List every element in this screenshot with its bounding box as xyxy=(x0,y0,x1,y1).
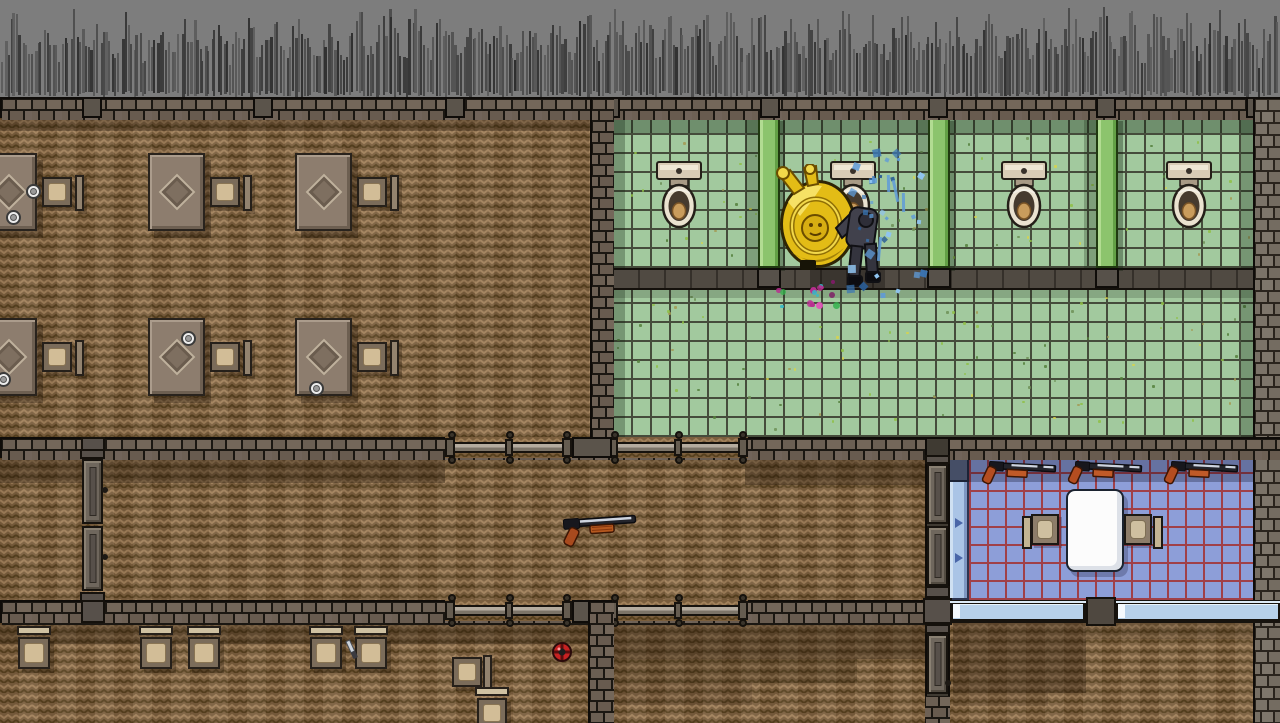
gore-splatter-dot xyxy=(833,302,840,309)
tile-speck xyxy=(748,396,751,399)
grass-blade xyxy=(1000,58,1003,97)
grass-blade xyxy=(583,24,586,92)
tile-speck xyxy=(965,244,968,247)
grass-blade xyxy=(370,46,372,97)
tile-speck xyxy=(952,311,955,314)
grass-blade xyxy=(1134,25,1136,94)
grass-blade xyxy=(253,27,255,92)
grass-blade xyxy=(1125,41,1127,95)
grass-blade xyxy=(537,50,539,95)
gore-splatter-dot xyxy=(831,280,835,284)
railing-knob xyxy=(563,594,571,602)
grass-blade xyxy=(79,42,81,94)
railing-knob xyxy=(563,431,571,439)
grass-blade xyxy=(144,61,146,94)
door-groove xyxy=(89,467,96,516)
grass-blade xyxy=(420,26,422,95)
grass-blade xyxy=(1095,32,1097,94)
grass-blade xyxy=(1200,54,1202,95)
door-hinge xyxy=(102,554,108,560)
tile-speck xyxy=(903,187,905,190)
grass-blade xyxy=(918,42,920,92)
grass-blade xyxy=(753,45,755,92)
grass-blade xyxy=(1137,51,1139,94)
grass-blade xyxy=(883,44,885,95)
stool-back xyxy=(17,626,51,635)
tile-speck xyxy=(1230,197,1232,200)
water-splash-particle xyxy=(862,195,866,199)
grass-blade xyxy=(652,29,654,95)
railing-knob xyxy=(506,619,514,627)
window-glass xyxy=(953,604,1083,619)
door-cap xyxy=(925,455,950,464)
grass-blade xyxy=(596,40,598,92)
grass-blade xyxy=(351,33,353,92)
office-chair-back xyxy=(390,175,399,211)
grass-blade xyxy=(1238,23,1240,91)
tile-speck xyxy=(1105,297,1108,299)
wall-shotgun[interactable] xyxy=(981,458,1059,492)
grass-blade xyxy=(73,9,75,93)
grass-blade xyxy=(478,32,480,95)
grass-blade xyxy=(439,19,441,96)
office-chair-seat xyxy=(42,177,72,207)
grass-blade xyxy=(1204,38,1206,94)
grass-blade xyxy=(1056,54,1059,92)
chair-cushion xyxy=(363,348,381,366)
grass-blade xyxy=(876,44,878,93)
grass-blade xyxy=(849,34,851,96)
plate-detail xyxy=(0,376,7,383)
grass-blade xyxy=(1183,41,1185,93)
grass-blade xyxy=(760,17,762,94)
grass-blade xyxy=(399,56,401,95)
railing-knob xyxy=(675,431,683,439)
grass-blade xyxy=(31,54,33,94)
grass-blade xyxy=(256,57,258,93)
grass-blade xyxy=(1219,10,1221,93)
grass-blade xyxy=(720,41,722,94)
tile-speck xyxy=(1191,329,1193,331)
tile-speck xyxy=(819,326,822,328)
stall-divider-wall xyxy=(1096,118,1118,268)
stool-cushion xyxy=(361,643,381,663)
tile-speck xyxy=(894,418,897,421)
tile-speck xyxy=(1087,337,1089,340)
tile-speck xyxy=(933,396,936,398)
grass-blade xyxy=(1012,37,1014,93)
stool-seat xyxy=(18,637,50,669)
tile-speck xyxy=(774,428,777,431)
office-bathroom-wall-surface xyxy=(590,97,612,458)
tile-speck xyxy=(1080,302,1083,305)
grass-blade xyxy=(423,45,425,96)
grass-blade xyxy=(135,35,138,95)
grass-blade xyxy=(966,53,968,97)
gore-splatter-dot xyxy=(780,289,786,295)
stool-seat xyxy=(188,637,220,669)
door-panel[interactable] xyxy=(927,526,948,586)
grass-blade xyxy=(432,37,434,94)
tile-speck xyxy=(766,378,769,380)
grass-blade xyxy=(730,13,732,97)
red-mine[interactable] xyxy=(551,641,573,663)
office-chair-back xyxy=(243,175,252,211)
railing-knob xyxy=(448,619,456,627)
tile-speck xyxy=(1017,236,1020,238)
grass-blade xyxy=(243,39,245,93)
tile-speck xyxy=(714,230,717,232)
grass-blade xyxy=(556,35,558,95)
grass-blade xyxy=(394,28,396,96)
grass-blade xyxy=(819,48,821,94)
grass-blade xyxy=(324,47,327,95)
grass-blade xyxy=(184,19,186,93)
desk-plate xyxy=(181,331,196,346)
door-cap xyxy=(80,592,105,602)
grass-blade xyxy=(474,38,476,94)
grass-blade xyxy=(481,29,483,93)
tile-speck xyxy=(1091,184,1094,186)
stool-seat xyxy=(140,637,172,669)
tile-speck xyxy=(836,336,839,339)
door-arrow-icon xyxy=(955,553,963,563)
chair-cushion xyxy=(48,183,66,201)
white-table xyxy=(1066,489,1124,572)
grass-blade xyxy=(451,32,454,92)
grass-blade xyxy=(469,28,472,97)
grass-blade xyxy=(726,12,728,96)
railing-post xyxy=(674,439,682,456)
grass-blade xyxy=(125,12,127,92)
grass-blade xyxy=(724,36,726,96)
railing-knob xyxy=(563,456,571,464)
stall-divider-base xyxy=(927,268,951,288)
tile-speck xyxy=(968,143,970,146)
tile-speck xyxy=(1150,145,1153,147)
stool-back xyxy=(309,626,343,635)
grass-blade xyxy=(1177,28,1179,93)
grass-blade xyxy=(331,37,333,93)
tile-speck xyxy=(996,244,998,246)
grass-blade xyxy=(1269,34,1271,95)
tile-speck xyxy=(722,189,724,191)
grass-blade xyxy=(631,47,633,96)
game-viewport xyxy=(0,0,1280,723)
toilet[interactable] xyxy=(1166,161,1212,231)
office-chair-back xyxy=(390,340,399,376)
door-groove xyxy=(934,472,941,516)
grass-blade xyxy=(1276,22,1278,92)
tile-speck xyxy=(1132,364,1135,366)
grass-blade xyxy=(55,45,57,92)
grass-blade xyxy=(117,53,119,92)
grass-blade xyxy=(292,26,294,91)
grass-blade xyxy=(1213,30,1216,94)
grass-blade xyxy=(1038,29,1040,96)
grass-blade xyxy=(913,48,915,93)
grass-blade xyxy=(958,37,960,93)
top-wall-surface xyxy=(0,97,1280,118)
door-panel[interactable] xyxy=(82,459,103,524)
knife[interactable] xyxy=(344,639,360,661)
wall-shotgun[interactable] xyxy=(1067,458,1145,492)
grass-blade xyxy=(1029,59,1031,93)
grass-blade xyxy=(356,21,358,91)
grass-blade xyxy=(114,58,116,97)
railing-post xyxy=(674,602,682,619)
grass-blade xyxy=(489,44,491,92)
grass-blade xyxy=(1198,61,1200,96)
grass-blade xyxy=(309,47,311,94)
tile-speck xyxy=(1163,175,1165,178)
chair-cushion xyxy=(216,348,234,366)
armchair-seat xyxy=(1124,514,1152,545)
grass-blade xyxy=(673,45,675,96)
toilet[interactable] xyxy=(656,161,702,231)
grass-blade xyxy=(627,51,630,95)
office-chair-seat xyxy=(210,177,240,207)
grass-blade xyxy=(945,43,947,92)
grass-blade xyxy=(687,46,689,93)
grass-blade xyxy=(579,21,581,96)
water-splash-particle xyxy=(863,210,869,216)
stall-divider-wall xyxy=(928,118,950,268)
grass-blade xyxy=(340,55,342,94)
grass-blade xyxy=(511,58,513,96)
grass-blade xyxy=(544,55,546,91)
bottom-divider-wall-surface xyxy=(588,600,612,723)
tile-speck xyxy=(869,141,872,143)
tile-speck xyxy=(617,347,619,349)
grass-blade xyxy=(526,46,528,94)
grass-blade xyxy=(130,44,132,93)
grass-blade xyxy=(1099,17,1102,96)
office-chair-seat xyxy=(357,342,387,372)
bathroom-floor-tiles xyxy=(612,290,1253,437)
door-panel[interactable] xyxy=(82,526,103,591)
office-desk xyxy=(148,318,205,396)
tile-speck xyxy=(1026,357,1029,359)
tile-speck xyxy=(869,393,871,396)
grass-blade xyxy=(1087,56,1089,91)
railing-knob xyxy=(739,594,747,602)
grass-blade xyxy=(1,62,3,93)
grass-blade xyxy=(655,58,657,97)
railing-knob xyxy=(739,431,747,439)
grass-blade xyxy=(62,44,64,95)
tile-speck xyxy=(713,416,716,419)
railing-post xyxy=(505,602,513,619)
grass-blade xyxy=(496,38,498,93)
grass-blade xyxy=(1032,55,1034,95)
grass-blade xyxy=(758,18,760,95)
grass-blade xyxy=(670,16,672,94)
chair-cushion xyxy=(363,183,381,201)
grass-blade xyxy=(856,53,858,96)
tile-speck xyxy=(755,155,757,157)
tile-speck xyxy=(971,394,973,397)
grass-blade xyxy=(1045,31,1047,91)
tile-speck xyxy=(737,383,739,386)
grass-blade xyxy=(148,40,150,91)
grass-blade xyxy=(385,36,388,92)
grass-blade xyxy=(93,40,95,96)
grass-blade xyxy=(235,32,237,97)
railing-knob xyxy=(675,619,683,627)
stool-cushion xyxy=(24,643,44,663)
wall-junction-block xyxy=(923,598,952,624)
armchair-back xyxy=(1153,516,1163,549)
grass-blade xyxy=(1156,17,1158,94)
grass-blade xyxy=(741,62,743,96)
tile-speck xyxy=(656,365,658,368)
railing-knob xyxy=(448,594,456,602)
grass-blade xyxy=(865,44,867,92)
grass-blade xyxy=(1249,42,1251,94)
grass-blade xyxy=(12,13,15,96)
grass-blade xyxy=(616,32,618,92)
grass-blade xyxy=(748,53,750,92)
grass-blade xyxy=(931,43,933,97)
wall-column xyxy=(760,97,780,118)
water-splash-particle xyxy=(848,265,856,273)
stool-back xyxy=(354,626,388,635)
railing-knob xyxy=(675,594,683,602)
grass-blade xyxy=(165,50,167,94)
grass-blade xyxy=(372,54,374,94)
window-glass-cap xyxy=(1118,604,1125,618)
grass-blade xyxy=(363,46,365,96)
tile-speck xyxy=(1152,385,1155,388)
office-chair-seat xyxy=(42,342,72,372)
desk-inlay xyxy=(0,174,27,211)
chair-cushion xyxy=(483,704,501,722)
grass-blade xyxy=(343,60,345,95)
grass-blade xyxy=(659,57,661,93)
office-chair-seat xyxy=(357,177,387,207)
grass-blade xyxy=(190,42,193,94)
tile-speck xyxy=(617,339,620,341)
tile-speck xyxy=(637,360,640,363)
grass-blade xyxy=(547,45,549,96)
door-cap xyxy=(925,586,950,598)
grass-blade xyxy=(622,21,624,95)
railing-post xyxy=(505,439,513,456)
grass-blade xyxy=(963,44,965,91)
dropped-shotgun[interactable] xyxy=(556,506,642,552)
desk-inlay xyxy=(305,174,342,211)
railing-knob xyxy=(563,619,571,627)
grass-blade xyxy=(1233,39,1236,96)
wall-shotgun[interactable] xyxy=(1163,458,1241,492)
tile-speck xyxy=(912,228,915,231)
door-panel[interactable] xyxy=(927,464,948,524)
grass-blade xyxy=(213,30,215,96)
door-groove xyxy=(934,534,941,578)
tile-speck xyxy=(1028,386,1031,389)
side-chair-seat xyxy=(452,657,482,687)
wall-column xyxy=(1096,97,1116,118)
grass-blade xyxy=(835,50,837,94)
door-hinge xyxy=(102,487,108,493)
tile-speck xyxy=(639,324,642,327)
right-outer-wall-surface xyxy=(1253,97,1280,723)
grass-blade xyxy=(1021,28,1023,92)
toilet[interactable] xyxy=(1001,161,1047,231)
grass-blade xyxy=(995,36,997,93)
tile-speck xyxy=(683,142,686,145)
gore-splatter-dot xyxy=(816,302,823,309)
tile-speck xyxy=(1080,403,1083,405)
grass-blade xyxy=(684,49,686,93)
grass-blade xyxy=(552,25,554,95)
grass-blade xyxy=(1209,23,1211,96)
window-glass xyxy=(1118,604,1278,619)
grass-blade xyxy=(889,52,891,93)
grass-blade xyxy=(778,48,780,92)
tile-speck xyxy=(1229,402,1231,405)
grass-blade xyxy=(226,41,228,92)
tile-speck xyxy=(794,368,796,371)
water-splash-streak xyxy=(901,193,904,212)
tile-speck xyxy=(1079,242,1081,245)
grass-blade xyxy=(460,53,462,97)
grass-blade xyxy=(436,23,438,95)
grass-blade xyxy=(790,19,792,92)
armchair-cushion xyxy=(1130,520,1146,539)
grass-blade xyxy=(1075,19,1077,92)
chair-cushion xyxy=(216,183,234,201)
door-groove xyxy=(89,534,96,583)
grass-blade xyxy=(675,47,678,94)
office-chair-back xyxy=(75,340,84,376)
grass-blade xyxy=(196,40,199,94)
grass-blade xyxy=(201,61,203,93)
grass-blade xyxy=(540,45,542,97)
railing-knob xyxy=(448,431,456,439)
grass-blade xyxy=(956,17,958,94)
railing-knob xyxy=(739,619,747,627)
door-hinge xyxy=(945,680,951,686)
grass-blade xyxy=(991,24,993,96)
grass-blade xyxy=(839,30,841,91)
grass-blade xyxy=(39,42,41,95)
grass-blade xyxy=(207,51,209,94)
grass-blade xyxy=(96,24,98,93)
grass-blade xyxy=(1252,45,1254,91)
tile-speck xyxy=(739,163,742,165)
desk-plate xyxy=(26,184,41,199)
window-glass-cap xyxy=(953,604,960,618)
grass-blade xyxy=(522,31,524,95)
tile-speck xyxy=(1029,240,1032,242)
grass-blade xyxy=(814,42,816,94)
tile-speck xyxy=(838,401,841,403)
grass-blade xyxy=(318,56,321,93)
grass-blade xyxy=(895,38,897,92)
office-chair-back xyxy=(243,340,252,376)
armchair-seat xyxy=(1031,514,1059,545)
wall-column xyxy=(82,97,102,118)
grass-blade xyxy=(859,53,861,91)
grass-blade xyxy=(576,37,578,95)
tile-speck xyxy=(976,311,978,314)
gore-splatter-dot xyxy=(810,303,815,308)
grass-blade xyxy=(985,21,987,92)
grass-blade xyxy=(952,46,954,95)
stall-divider-base xyxy=(1095,268,1119,288)
